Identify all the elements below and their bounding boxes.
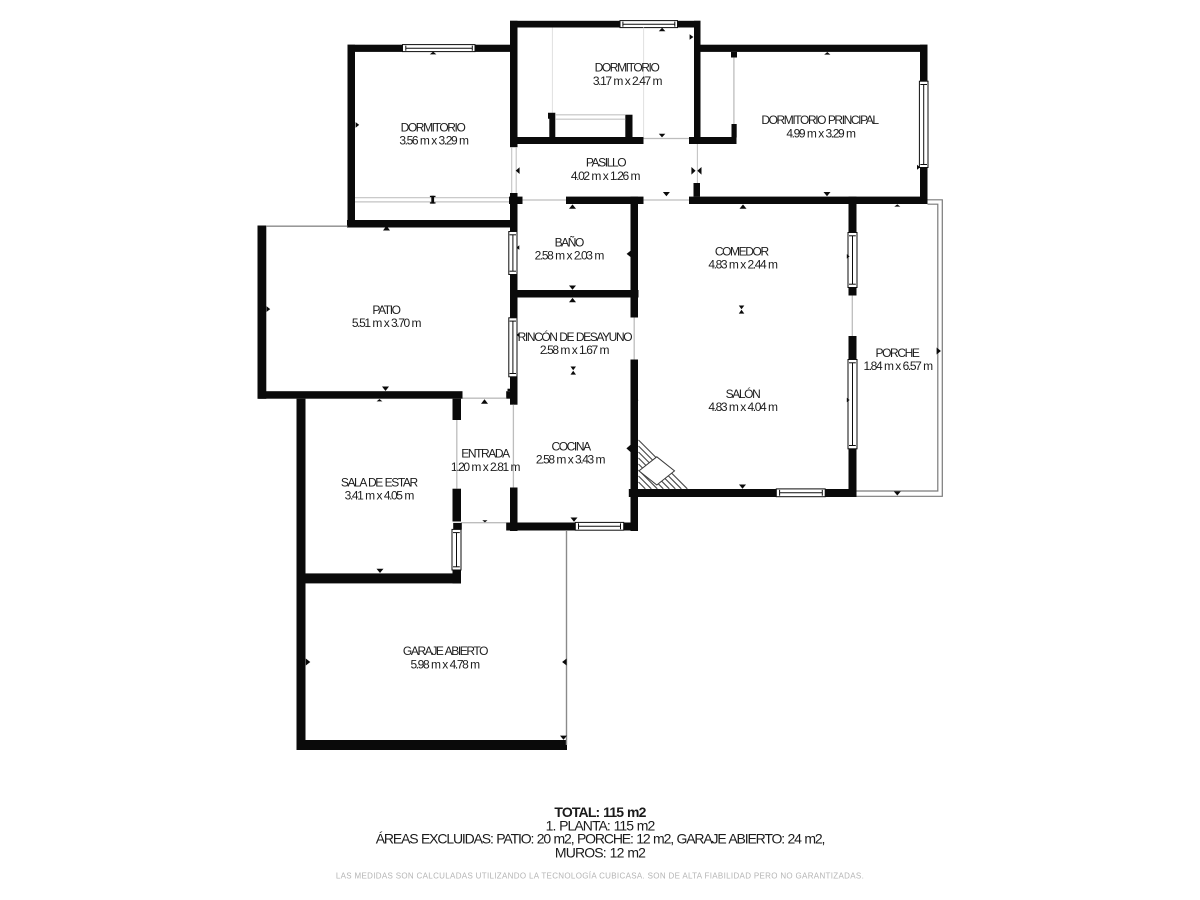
svg-text:4.83 m x 4.04 m: 4.83 m x 4.04 m bbox=[708, 400, 778, 414]
svg-text:SALA DE ESTAR: SALA DE ESTAR bbox=[341, 475, 419, 489]
svg-text:LAS MEDIDAS SON CALCULADAS UTI: LAS MEDIDAS SON CALCULADAS UTILIZANDO LA… bbox=[336, 871, 864, 880]
svg-text:2.58 m x 1.67 m: 2.58 m x 1.67 m bbox=[540, 343, 610, 357]
svg-text:1.84 m x 6.57 m: 1.84 m x 6.57 m bbox=[863, 359, 933, 373]
svg-text:1.20 m x 2.81 m: 1.20 m x 2.81 m bbox=[451, 460, 521, 474]
svg-text:DORMITORIO: DORMITORIO bbox=[595, 61, 660, 75]
svg-text:5.51 m x 3.70 m: 5.51 m x 3.70 m bbox=[352, 316, 422, 330]
svg-text:BAÑO: BAÑO bbox=[555, 235, 584, 249]
svg-text:PATIO: PATIO bbox=[372, 303, 400, 317]
svg-text:4.99 m x 3.29 m: 4.99 m x 3.29 m bbox=[786, 127, 856, 141]
svg-text:SALÓN: SALÓN bbox=[726, 386, 760, 401]
svg-text:DORMITORIO: DORMITORIO bbox=[401, 120, 466, 134]
svg-text:2.58 m x 3.43 m: 2.58 m x 3.43 m bbox=[536, 453, 606, 467]
svg-text:RINCÓN DE DESAYUNO: RINCÓN DE DESAYUNO bbox=[518, 329, 633, 344]
svg-text:2.58 m x 2.03 m: 2.58 m x 2.03 m bbox=[535, 249, 605, 263]
svg-text:4.02 m x 1.26 m: 4.02 m x 1.26 m bbox=[571, 169, 641, 183]
svg-text:PASILLO: PASILLO bbox=[586, 155, 626, 169]
svg-text:COCINA: COCINA bbox=[551, 439, 591, 453]
svg-text:3.56 m x 3.29 m: 3.56 m x 3.29 m bbox=[399, 134, 469, 148]
svg-text:COMEDOR: COMEDOR bbox=[715, 244, 770, 258]
svg-text:GARAJE ABIERTO: GARAJE ABIERTO bbox=[403, 644, 488, 658]
svg-text:ENTRADA: ENTRADA bbox=[461, 447, 510, 461]
svg-text:5.98 m x 4.78 m: 5.98 m x 4.78 m bbox=[410, 658, 480, 672]
svg-text:PORCHE: PORCHE bbox=[876, 346, 920, 360]
svg-text:DORMITORIO PRINCIPAL: DORMITORIO PRINCIPAL bbox=[761, 113, 879, 127]
svg-text:MUROS: 12 m2: MUROS: 12 m2 bbox=[555, 844, 646, 860]
svg-text:4.83 m x 2.44 m: 4.83 m x 2.44 m bbox=[708, 257, 778, 271]
svg-text:3.41 m x 4.05 m: 3.41 m x 4.05 m bbox=[345, 489, 415, 503]
svg-text:3.17 m x 2.47 m: 3.17 m x 2.47 m bbox=[593, 74, 663, 88]
